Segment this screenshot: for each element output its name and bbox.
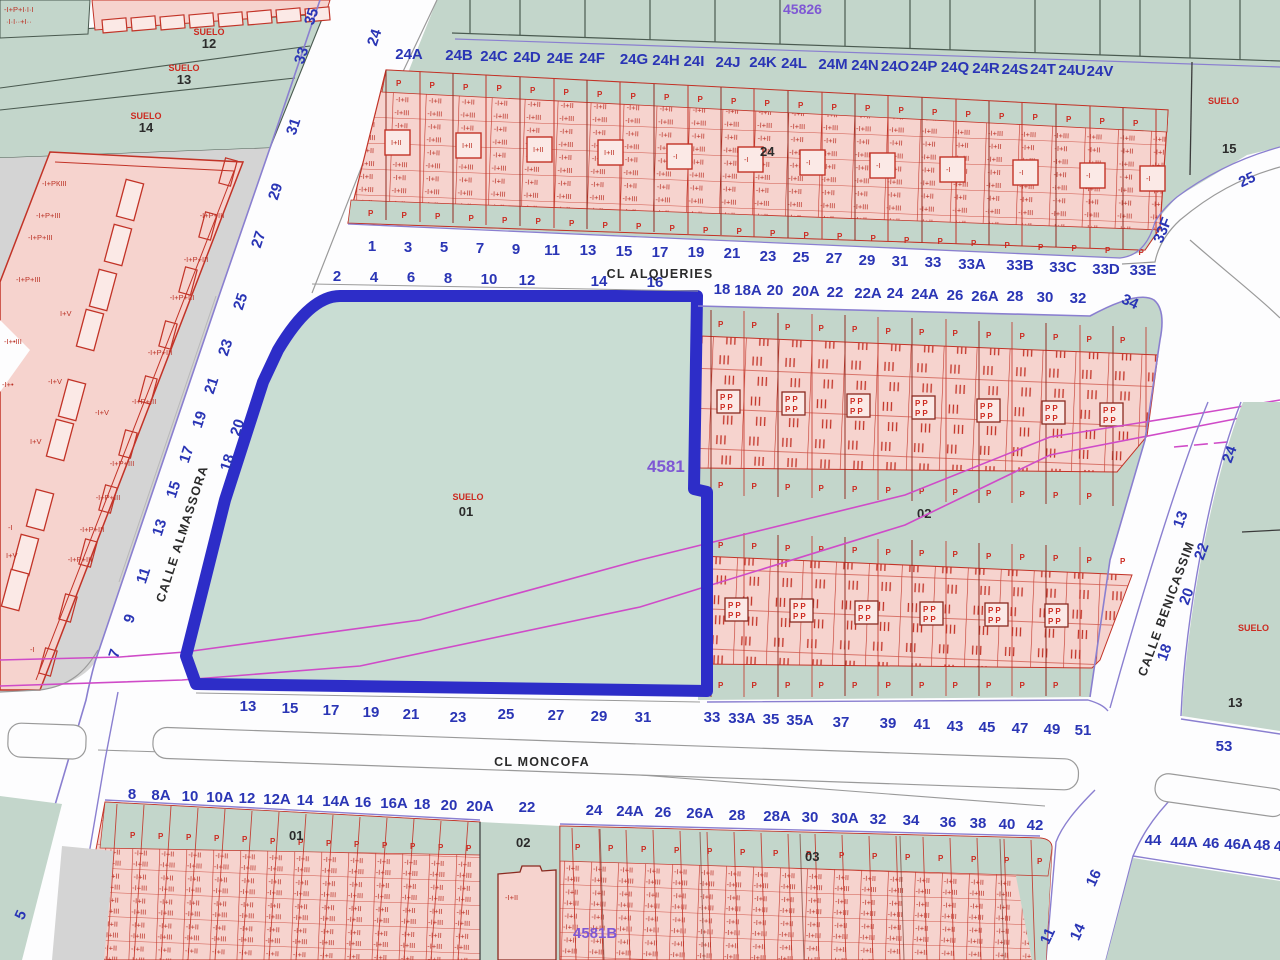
svg-text:4581B: 4581B bbox=[573, 925, 617, 942]
svg-text:19: 19 bbox=[363, 704, 380, 721]
svg-text:P P: P P bbox=[785, 395, 798, 404]
svg-text:28: 28 bbox=[729, 807, 746, 824]
svg-text:24C: 24C bbox=[480, 48, 508, 65]
svg-text:13: 13 bbox=[177, 72, 191, 87]
svg-text:P: P bbox=[852, 681, 858, 690]
svg-text:P: P bbox=[564, 88, 570, 97]
svg-text:P: P bbox=[502, 216, 508, 225]
svg-text:48: 48 bbox=[1254, 837, 1271, 854]
svg-text:P: P bbox=[1038, 243, 1044, 252]
svg-text:P P: P P bbox=[1045, 404, 1058, 413]
svg-text:P: P bbox=[904, 236, 910, 245]
svg-text:28: 28 bbox=[1007, 288, 1024, 305]
svg-text:-I+P+III: -I+P+III bbox=[200, 211, 225, 220]
svg-text:P: P bbox=[530, 86, 536, 95]
svg-text:26: 26 bbox=[947, 287, 964, 304]
svg-text:P: P bbox=[664, 93, 670, 102]
svg-text:P: P bbox=[435, 212, 441, 221]
svg-text:P P: P P bbox=[923, 605, 936, 614]
svg-text:47: 47 bbox=[1012, 720, 1029, 737]
svg-text:P: P bbox=[718, 320, 724, 329]
svg-text:-I: -I bbox=[1086, 171, 1091, 180]
svg-text:P: P bbox=[752, 542, 758, 551]
svg-text:24I: 24I bbox=[684, 53, 705, 70]
svg-text:P: P bbox=[1066, 115, 1072, 124]
svg-text:P: P bbox=[536, 217, 542, 226]
svg-text:P: P bbox=[938, 237, 944, 246]
svg-text:I+II: I+II bbox=[604, 148, 615, 157]
svg-text:P: P bbox=[986, 552, 992, 561]
svg-text:26: 26 bbox=[655, 804, 672, 821]
svg-text:33B: 33B bbox=[1006, 257, 1034, 274]
svg-text:36: 36 bbox=[940, 814, 957, 831]
svg-text:24: 24 bbox=[586, 802, 603, 819]
svg-text:P: P bbox=[354, 840, 360, 849]
svg-text:P: P bbox=[1033, 113, 1039, 122]
svg-text:24A: 24A bbox=[616, 803, 644, 820]
svg-text:P: P bbox=[785, 483, 791, 492]
svg-text:-I+V: -I+V bbox=[95, 408, 109, 417]
svg-text:P: P bbox=[886, 486, 892, 495]
svg-text:14A: 14A bbox=[322, 793, 350, 810]
svg-text:33A: 33A bbox=[728, 710, 756, 727]
svg-text:40: 40 bbox=[999, 816, 1016, 833]
svg-text:P: P bbox=[852, 325, 858, 334]
svg-text:29: 29 bbox=[591, 708, 608, 725]
svg-text:P: P bbox=[1053, 681, 1059, 690]
svg-text:P: P bbox=[1020, 553, 1026, 562]
svg-text:37: 37 bbox=[833, 714, 850, 731]
svg-text:30: 30 bbox=[802, 809, 819, 826]
svg-text:P P: P P bbox=[793, 602, 806, 611]
svg-text:-I+II: -I+II bbox=[505, 893, 518, 902]
svg-text:P: P bbox=[1072, 244, 1078, 253]
svg-text:12: 12 bbox=[519, 272, 536, 289]
svg-text:22: 22 bbox=[827, 284, 844, 301]
svg-text:P: P bbox=[410, 842, 416, 851]
svg-text:P: P bbox=[819, 324, 825, 333]
svg-text:24V: 24V bbox=[1087, 63, 1114, 80]
svg-text:P: P bbox=[631, 92, 637, 101]
svg-text:P: P bbox=[953, 550, 959, 559]
svg-text:P P: P P bbox=[720, 393, 733, 402]
svg-text:-I+P+III: -I+P+III bbox=[28, 233, 53, 242]
svg-text:P: P bbox=[871, 234, 877, 243]
svg-text:42: 42 bbox=[1027, 817, 1044, 834]
svg-text:P P: P P bbox=[980, 402, 993, 411]
svg-text:24R: 24R bbox=[972, 60, 1000, 77]
svg-text:-I: -I bbox=[8, 523, 13, 532]
svg-text:24O: 24O bbox=[881, 58, 910, 75]
svg-text:CL MONCOFA: CL MONCOFA bbox=[494, 755, 590, 769]
svg-text:34: 34 bbox=[903, 812, 920, 829]
svg-text:8: 8 bbox=[444, 270, 452, 287]
svg-text:30: 30 bbox=[1037, 289, 1054, 306]
svg-text:P: P bbox=[469, 214, 475, 223]
svg-text:-I+P+III: -I+P+III bbox=[148, 348, 173, 357]
svg-text:25: 25 bbox=[498, 706, 515, 723]
svg-text:P: P bbox=[1020, 332, 1026, 341]
svg-text:33C: 33C bbox=[1049, 259, 1077, 276]
svg-text:P: P bbox=[852, 546, 858, 555]
svg-text:20: 20 bbox=[441, 797, 458, 814]
svg-text:24K: 24K bbox=[749, 54, 777, 71]
svg-text:22A: 22A bbox=[854, 285, 882, 302]
svg-text:P: P bbox=[865, 104, 871, 113]
svg-text:P: P bbox=[852, 485, 858, 494]
svg-text:P: P bbox=[785, 544, 791, 553]
svg-text:P: P bbox=[603, 221, 609, 230]
svg-text:P P: P P bbox=[1045, 414, 1058, 423]
svg-text:17: 17 bbox=[652, 244, 669, 261]
svg-text:SUELO: SUELO bbox=[1238, 623, 1269, 633]
svg-text:P: P bbox=[1087, 335, 1093, 344]
svg-text:P: P bbox=[905, 853, 911, 862]
svg-text:44: 44 bbox=[1145, 832, 1162, 849]
svg-text:44A: 44A bbox=[1170, 834, 1198, 851]
svg-text:P P: P P bbox=[720, 403, 733, 412]
svg-text:13: 13 bbox=[580, 242, 597, 259]
svg-text:4: 4 bbox=[370, 269, 379, 286]
svg-text:P: P bbox=[804, 231, 810, 240]
svg-text:CL ALQUERIES: CL ALQUERIES bbox=[607, 267, 714, 281]
svg-text:5: 5 bbox=[440, 239, 448, 256]
svg-text:P P: P P bbox=[1103, 416, 1116, 425]
svg-text:P: P bbox=[430, 81, 436, 90]
svg-text:P: P bbox=[608, 844, 614, 853]
svg-text:15: 15 bbox=[616, 243, 633, 260]
svg-text:9: 9 bbox=[512, 241, 520, 258]
svg-text:P P: P P bbox=[858, 604, 871, 613]
svg-text:P: P bbox=[919, 328, 925, 337]
svg-text:-I: -I bbox=[806, 158, 811, 167]
svg-text:7: 7 bbox=[476, 240, 484, 257]
svg-text:P: P bbox=[1087, 492, 1093, 501]
svg-text:P: P bbox=[214, 834, 220, 843]
svg-text:23: 23 bbox=[450, 709, 467, 726]
svg-text:P: P bbox=[703, 226, 709, 235]
svg-text:SUELO: SUELO bbox=[1208, 96, 1239, 106]
svg-text:4581: 4581 bbox=[647, 457, 685, 476]
svg-text:12: 12 bbox=[239, 790, 256, 807]
svg-text:24G: 24G bbox=[620, 51, 648, 68]
svg-text:24H: 24H bbox=[652, 52, 680, 69]
svg-text:8A: 8A bbox=[151, 787, 170, 804]
svg-text:38: 38 bbox=[970, 815, 987, 832]
svg-text:-I+P+III: -I+P+III bbox=[184, 255, 209, 264]
svg-text:P: P bbox=[986, 681, 992, 690]
svg-text:I+II: I+II bbox=[462, 141, 473, 150]
svg-text:P: P bbox=[497, 84, 503, 93]
svg-text:13: 13 bbox=[1228, 695, 1242, 710]
svg-text:P: P bbox=[971, 855, 977, 864]
svg-text:P: P bbox=[986, 331, 992, 340]
svg-text:24E: 24E bbox=[547, 50, 574, 67]
svg-text:P: P bbox=[752, 321, 758, 330]
svg-text:P: P bbox=[1087, 556, 1093, 565]
svg-text:P: P bbox=[718, 541, 724, 550]
svg-text:33A: 33A bbox=[958, 256, 986, 273]
svg-text:I+II: I+II bbox=[391, 138, 402, 147]
svg-text:10: 10 bbox=[182, 788, 199, 805]
svg-text:31: 31 bbox=[892, 253, 909, 270]
svg-text:10A: 10A bbox=[206, 789, 234, 806]
svg-text:P: P bbox=[765, 99, 771, 108]
svg-text:P P: P P bbox=[728, 601, 741, 610]
svg-text:41: 41 bbox=[914, 716, 931, 733]
svg-text:P: P bbox=[670, 224, 676, 233]
svg-text:18A: 18A bbox=[734, 282, 762, 299]
svg-text:·I·I··+I··: ·I·I··+I·· bbox=[6, 17, 32, 26]
svg-text:P P: P P bbox=[858, 614, 871, 623]
svg-text:-I+P+III: -I+P+III bbox=[36, 211, 61, 220]
svg-text:P: P bbox=[773, 849, 779, 858]
svg-text:P P: P P bbox=[850, 397, 863, 406]
svg-text:P: P bbox=[402, 211, 408, 220]
svg-text:6: 6 bbox=[407, 269, 415, 286]
svg-text:P: P bbox=[770, 229, 776, 238]
svg-text:P: P bbox=[932, 108, 938, 117]
svg-text:24J: 24J bbox=[715, 54, 740, 71]
svg-text:P: P bbox=[899, 106, 905, 115]
svg-text:P: P bbox=[396, 79, 402, 88]
svg-text:P: P bbox=[242, 835, 248, 844]
svg-text:P: P bbox=[752, 482, 758, 491]
svg-text:24: 24 bbox=[887, 285, 904, 302]
svg-text:P: P bbox=[1133, 119, 1139, 128]
svg-text:24P: 24P bbox=[911, 58, 938, 75]
svg-text:23: 23 bbox=[760, 248, 777, 265]
svg-text:-I: -I bbox=[1019, 168, 1024, 177]
svg-text:21: 21 bbox=[724, 245, 741, 262]
svg-text:33: 33 bbox=[704, 709, 721, 726]
svg-text:24M: 24M bbox=[818, 56, 847, 73]
svg-text:26A: 26A bbox=[686, 805, 714, 822]
svg-text:P: P bbox=[1020, 490, 1026, 499]
svg-text:20A: 20A bbox=[792, 283, 820, 300]
svg-text:P: P bbox=[1105, 246, 1111, 255]
svg-text:18: 18 bbox=[714, 281, 731, 298]
svg-text:15: 15 bbox=[282, 700, 299, 717]
svg-text:31: 31 bbox=[635, 709, 652, 726]
svg-text:02: 02 bbox=[516, 835, 530, 850]
svg-text:-I+P+III: -I+P+III bbox=[16, 275, 41, 284]
svg-text:P P: P P bbox=[785, 405, 798, 414]
svg-text:-I+P+III: -I+P+III bbox=[170, 293, 195, 302]
svg-text:P P: P P bbox=[1048, 617, 1061, 626]
svg-text:14: 14 bbox=[297, 792, 314, 809]
svg-text:-I: -I bbox=[1146, 174, 1151, 183]
svg-text:P: P bbox=[837, 232, 843, 241]
svg-text:01: 01 bbox=[289, 828, 303, 843]
svg-text:17: 17 bbox=[323, 702, 340, 719]
svg-text:30A: 30A bbox=[831, 810, 859, 827]
svg-text:-I+P+III: -I+P+III bbox=[132, 397, 157, 406]
svg-text:P P: P P bbox=[923, 615, 936, 624]
svg-text:24N: 24N bbox=[851, 57, 879, 74]
svg-text:03: 03 bbox=[805, 849, 819, 864]
svg-text:45826: 45826 bbox=[783, 1, 822, 17]
svg-text:15: 15 bbox=[1222, 141, 1236, 156]
svg-text:P: P bbox=[953, 681, 959, 690]
svg-text:14: 14 bbox=[139, 120, 154, 135]
svg-text:29: 29 bbox=[859, 252, 876, 269]
svg-text:P: P bbox=[569, 219, 575, 228]
svg-text:3: 3 bbox=[404, 239, 412, 256]
svg-text:20A: 20A bbox=[466, 798, 494, 815]
svg-text:19: 19 bbox=[688, 244, 705, 261]
svg-text:P P: P P bbox=[915, 409, 928, 418]
svg-text:I+V: I+V bbox=[30, 437, 41, 446]
svg-text:4: 4 bbox=[1274, 838, 1280, 855]
svg-text:P: P bbox=[1005, 241, 1011, 250]
svg-text:39: 39 bbox=[880, 715, 897, 732]
svg-text:-I+P+III: -I+P+III bbox=[80, 525, 105, 534]
svg-text:46A: 46A bbox=[1224, 836, 1252, 853]
svg-text:43: 43 bbox=[947, 718, 964, 735]
svg-text:-I: -I bbox=[673, 152, 678, 161]
svg-text:P: P bbox=[971, 239, 977, 248]
svg-text:P: P bbox=[785, 681, 791, 690]
svg-text:P: P bbox=[919, 549, 925, 558]
svg-text:P P: P P bbox=[915, 399, 928, 408]
svg-text:P: P bbox=[1053, 333, 1059, 342]
svg-text:P: P bbox=[158, 832, 164, 841]
svg-text:P P: P P bbox=[988, 616, 1001, 625]
svg-text:P: P bbox=[886, 681, 892, 690]
svg-text:33: 33 bbox=[925, 254, 942, 271]
svg-text:P: P bbox=[1020, 681, 1026, 690]
svg-text:49: 49 bbox=[1044, 721, 1061, 738]
svg-text:P: P bbox=[1120, 557, 1126, 566]
svg-text:P P: P P bbox=[728, 611, 741, 620]
svg-text:27: 27 bbox=[548, 707, 565, 724]
svg-text:I+V: I+V bbox=[6, 551, 17, 560]
svg-text:P: P bbox=[953, 329, 959, 338]
svg-text:P: P bbox=[740, 848, 746, 857]
svg-text:45: 45 bbox=[979, 719, 996, 736]
svg-text:P: P bbox=[737, 227, 743, 236]
svg-text:21: 21 bbox=[403, 706, 420, 723]
svg-text:P P: P P bbox=[1103, 406, 1116, 415]
svg-text:P: P bbox=[1037, 857, 1043, 866]
svg-text:11: 11 bbox=[544, 242, 560, 259]
svg-text:24T: 24T bbox=[1030, 61, 1056, 78]
svg-text:P: P bbox=[575, 843, 581, 852]
svg-text:P: P bbox=[718, 481, 724, 490]
svg-text:P: P bbox=[641, 845, 647, 854]
svg-text:P: P bbox=[919, 681, 925, 690]
svg-text:P: P bbox=[886, 327, 892, 336]
svg-text:-I+P+III: -I+P+III bbox=[96, 493, 121, 502]
svg-text:P P: P P bbox=[980, 412, 993, 421]
svg-text:P: P bbox=[674, 846, 680, 855]
svg-text:P: P bbox=[819, 484, 825, 493]
svg-text:24B: 24B bbox=[445, 47, 473, 64]
svg-text:24Q: 24Q bbox=[941, 59, 970, 76]
svg-text:P: P bbox=[1053, 554, 1059, 563]
svg-text:P: P bbox=[832, 103, 838, 112]
svg-text:P: P bbox=[999, 112, 1005, 121]
svg-text:P: P bbox=[731, 97, 737, 106]
svg-text:I+V: I+V bbox=[60, 309, 71, 318]
svg-text:P: P bbox=[966, 110, 972, 119]
svg-text:P: P bbox=[819, 681, 825, 690]
svg-text:13: 13 bbox=[240, 698, 257, 715]
svg-text:P: P bbox=[986, 489, 992, 498]
svg-text:20: 20 bbox=[767, 282, 784, 299]
svg-text:P: P bbox=[636, 222, 642, 231]
svg-text:12A: 12A bbox=[263, 791, 291, 808]
svg-text:P: P bbox=[886, 548, 892, 557]
svg-text:46: 46 bbox=[1203, 835, 1220, 852]
svg-text:SUELO: SUELO bbox=[452, 492, 483, 502]
svg-text:P: P bbox=[597, 90, 603, 99]
svg-text:P: P bbox=[1120, 336, 1126, 345]
svg-text:-I: -I bbox=[946, 165, 951, 174]
svg-text:12: 12 bbox=[202, 36, 216, 51]
svg-text:P: P bbox=[798, 101, 804, 110]
svg-text:24S: 24S bbox=[1002, 61, 1029, 78]
svg-text:P: P bbox=[463, 83, 469, 92]
svg-text:25: 25 bbox=[793, 249, 810, 266]
svg-text:-I: -I bbox=[30, 645, 35, 654]
svg-text:33E: 33E bbox=[1130, 262, 1157, 279]
svg-text:P P: P P bbox=[793, 612, 806, 621]
svg-text:24L: 24L bbox=[781, 55, 807, 72]
svg-text:P: P bbox=[752, 681, 758, 690]
svg-text:-I+PКIII: -I+PКIII bbox=[42, 179, 67, 188]
svg-text:24D: 24D bbox=[513, 49, 541, 66]
svg-text:P P: P P bbox=[1048, 607, 1061, 616]
svg-text:24U: 24U bbox=[1058, 62, 1086, 79]
svg-text:32: 32 bbox=[1070, 290, 1087, 307]
svg-text:24A: 24A bbox=[911, 286, 939, 303]
svg-text:-I: -I bbox=[744, 155, 749, 164]
svg-text:P: P bbox=[718, 681, 724, 690]
svg-text:P P: P P bbox=[988, 606, 1001, 615]
svg-text:P: P bbox=[785, 323, 791, 332]
svg-text:-I: -I bbox=[876, 161, 881, 170]
svg-text:22: 22 bbox=[519, 799, 536, 816]
svg-text:I+II: I+II bbox=[533, 145, 544, 154]
svg-text:27: 27 bbox=[826, 250, 843, 267]
svg-text:14: 14 bbox=[591, 273, 608, 290]
svg-text:35A: 35A bbox=[786, 712, 814, 729]
svg-text:P: P bbox=[1100, 117, 1106, 126]
svg-text:01: 01 bbox=[459, 504, 473, 519]
svg-text:P: P bbox=[872, 852, 878, 861]
svg-text:33D: 33D bbox=[1092, 261, 1120, 278]
svg-text:-I+V: -I+V bbox=[48, 377, 62, 386]
svg-text:-I+•III: -I+•III bbox=[4, 337, 22, 346]
svg-text:-I+P+III: -I+P+III bbox=[68, 555, 93, 564]
svg-text:10: 10 bbox=[481, 271, 498, 288]
svg-text:24: 24 bbox=[760, 144, 775, 159]
svg-text:P: P bbox=[698, 95, 704, 104]
svg-text:P: P bbox=[130, 831, 136, 840]
svg-text:-I+•: -I+• bbox=[2, 380, 14, 389]
svg-text:8: 8 bbox=[128, 786, 136, 803]
svg-text:24F: 24F bbox=[579, 50, 605, 67]
svg-text:53: 53 bbox=[1216, 738, 1233, 755]
svg-text:26A: 26A bbox=[971, 288, 999, 305]
svg-text:P: P bbox=[368, 209, 374, 218]
svg-text:51: 51 bbox=[1075, 722, 1092, 739]
svg-text:P: P bbox=[938, 854, 944, 863]
svg-text:16A: 16A bbox=[380, 795, 408, 812]
svg-text:-I+P+I·I·I: -I+P+I·I·I bbox=[4, 5, 34, 14]
